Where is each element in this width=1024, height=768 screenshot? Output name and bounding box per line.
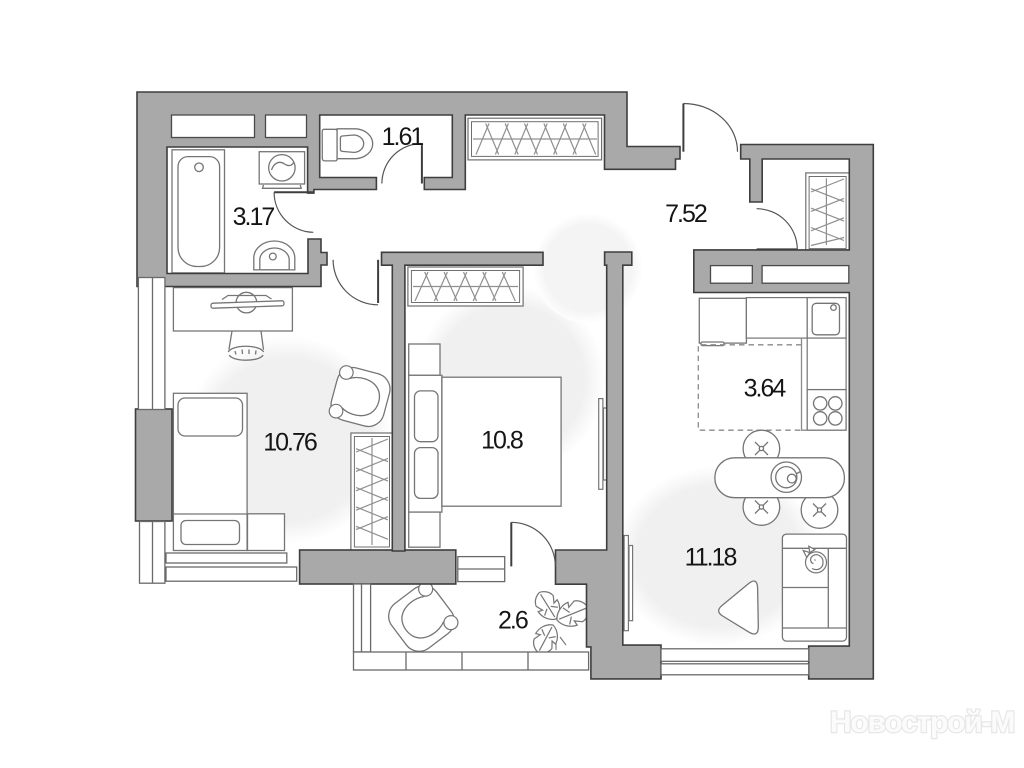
svg-text:2.6: 2.6 <box>498 607 528 635</box>
svg-text:10.8: 10.8 <box>481 427 523 455</box>
svg-text:10.76: 10.76 <box>263 429 317 457</box>
svg-text:1.61: 1.61 <box>382 123 424 151</box>
svg-text:Новострой-М: Новострой-М <box>830 706 1014 739</box>
svg-text:3.64: 3.64 <box>744 375 787 403</box>
svg-text:3.17: 3.17 <box>233 203 275 231</box>
svg-text:11.18: 11.18 <box>685 544 737 572</box>
svg-text:7.52: 7.52 <box>665 200 707 228</box>
